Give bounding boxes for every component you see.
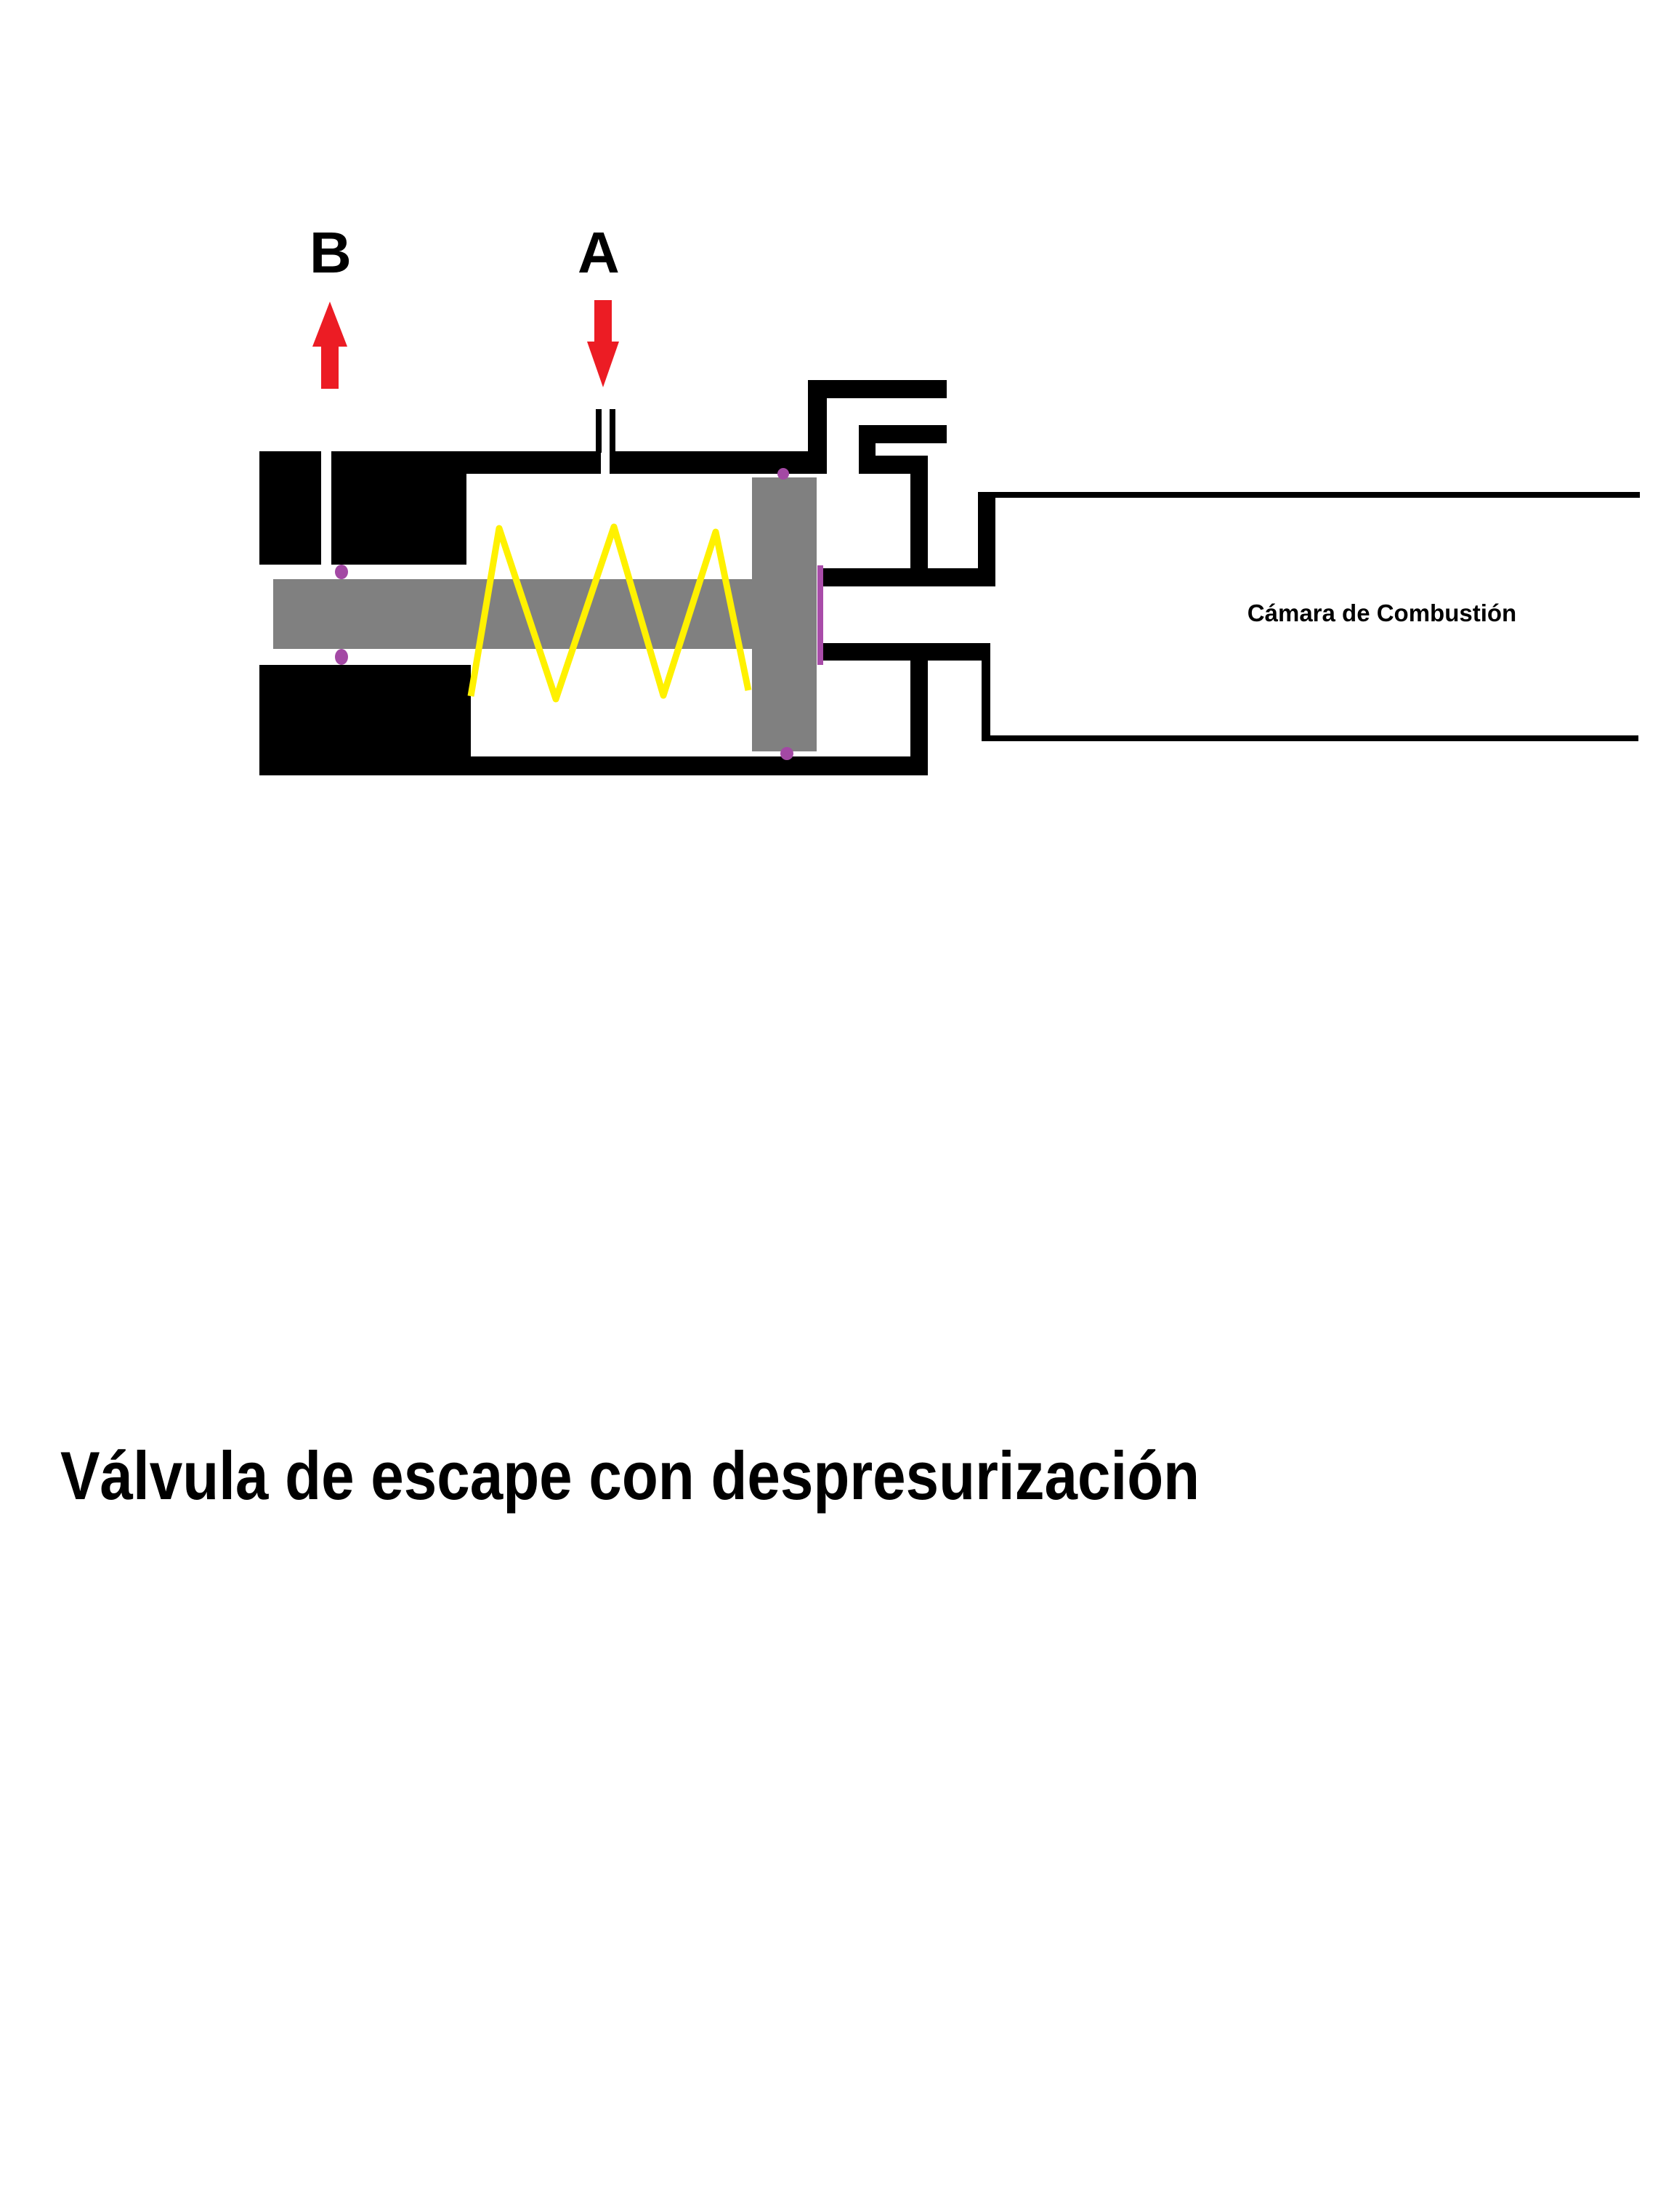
chamber-mouth-wall-top bbox=[978, 492, 995, 586]
seal-dot-b-top bbox=[335, 565, 348, 579]
valve-body-top-middle-block bbox=[331, 451, 466, 565]
combustion-chamber-bottom-wall bbox=[982, 735, 1638, 741]
valve-body-top-left-block bbox=[259, 451, 321, 565]
seat-upper-lip bbox=[823, 568, 992, 586]
arrow-head-down bbox=[587, 342, 619, 387]
seal-dot-b-bottom bbox=[335, 649, 348, 665]
port-a-label: A bbox=[578, 224, 620, 282]
valve-body-top-wall-left bbox=[466, 451, 601, 474]
spring bbox=[0, 0, 1674, 2212]
inlet-a-pipe-right-wall bbox=[610, 409, 615, 453]
pilot-channel-top-bar bbox=[808, 380, 947, 398]
pilot-inner-wall-top bbox=[910, 456, 928, 586]
seal-dot-disc-top bbox=[777, 468, 789, 480]
flow-arrow-a-down-icon bbox=[587, 300, 619, 387]
valve-seal-line bbox=[817, 565, 823, 665]
valve-body-top-wall-right bbox=[610, 451, 827, 474]
combustion-chamber-top-wall bbox=[982, 492, 1640, 498]
seat-lower-lip bbox=[823, 643, 990, 661]
valve-disc bbox=[752, 477, 817, 751]
inlet-a-pipe-left-wall bbox=[596, 409, 602, 453]
chamber-mouth-wall-bottom bbox=[982, 661, 990, 741]
seal-dot-disc-bottom bbox=[780, 747, 793, 760]
piston-rod bbox=[273, 579, 756, 649]
diagram-title: Válvula de escape con despresurización bbox=[60, 1442, 1200, 1510]
combustion-chamber-label: Cámara de Combustión bbox=[1237, 601, 1527, 625]
flow-arrow-b-up-icon bbox=[312, 302, 347, 389]
arrow-shaft bbox=[594, 300, 612, 343]
valve-diagram: B A Cámara de Combustión bbox=[0, 0, 1674, 2212]
arrow-shaft bbox=[321, 345, 339, 389]
valve-body-bottom-wall bbox=[259, 756, 928, 775]
port-b-label: B bbox=[310, 224, 352, 282]
arrow-head-up bbox=[312, 302, 347, 347]
